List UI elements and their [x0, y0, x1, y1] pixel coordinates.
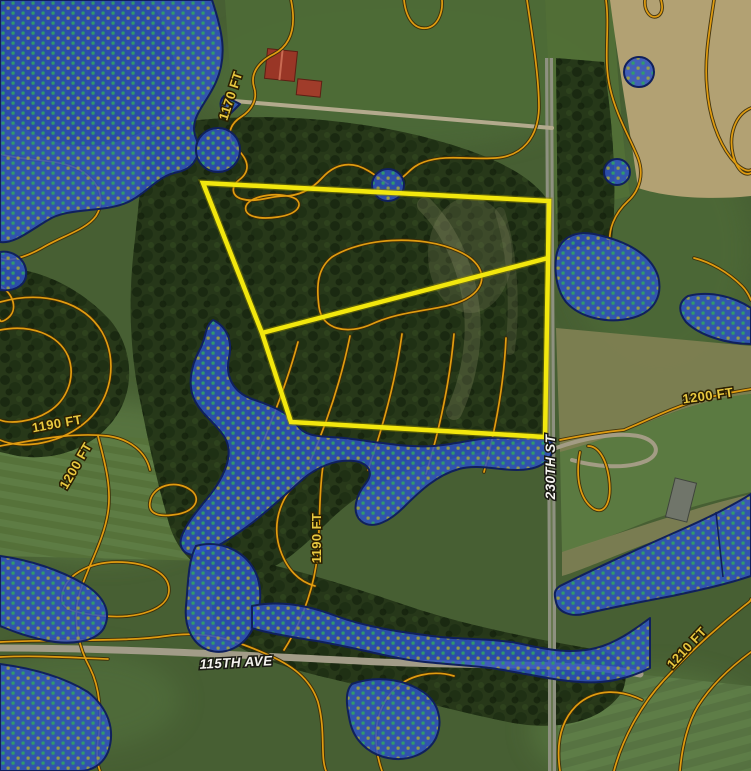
wetland-pond — [604, 159, 630, 185]
contour-label-1190-mid: 1190 FT — [309, 513, 324, 564]
wetland-pond — [624, 57, 654, 87]
red-barn — [265, 49, 298, 82]
wetland-pond — [196, 128, 240, 172]
red-shed — [296, 79, 322, 97]
road-label-230th-st: 230TH ST — [543, 433, 558, 500]
map-canvas: 1170 FT 1190 FT 1200 FT 1190 FT 1200 FT … — [0, 0, 751, 771]
map-viewport[interactable]: 1170 FT 1190 FT 1200 FT 1190 FT 1200 FT … — [0, 0, 751, 771]
